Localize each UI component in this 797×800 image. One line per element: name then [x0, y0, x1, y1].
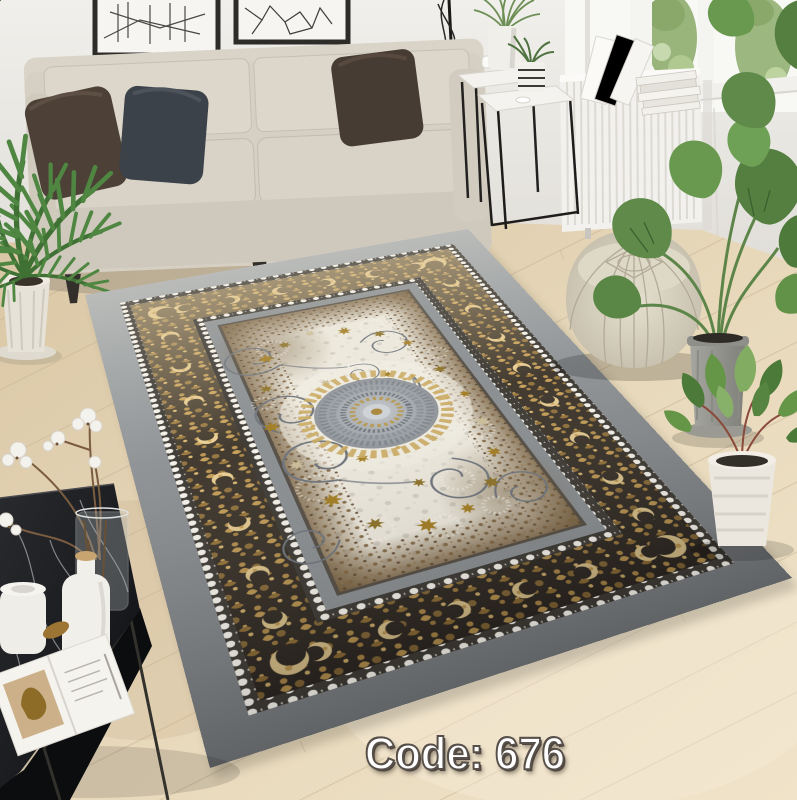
product-code-caption: Code: 676 [365, 728, 565, 780]
foreground-objects [0, 0, 797, 800]
marble-coffee-table [0, 408, 240, 800]
cork-stopper [75, 551, 97, 561]
product-code-text: Code: 676 [365, 728, 565, 779]
white-jar [0, 582, 46, 654]
product-photo: Code: 676 [0, 0, 797, 800]
white-pot [708, 460, 776, 546]
